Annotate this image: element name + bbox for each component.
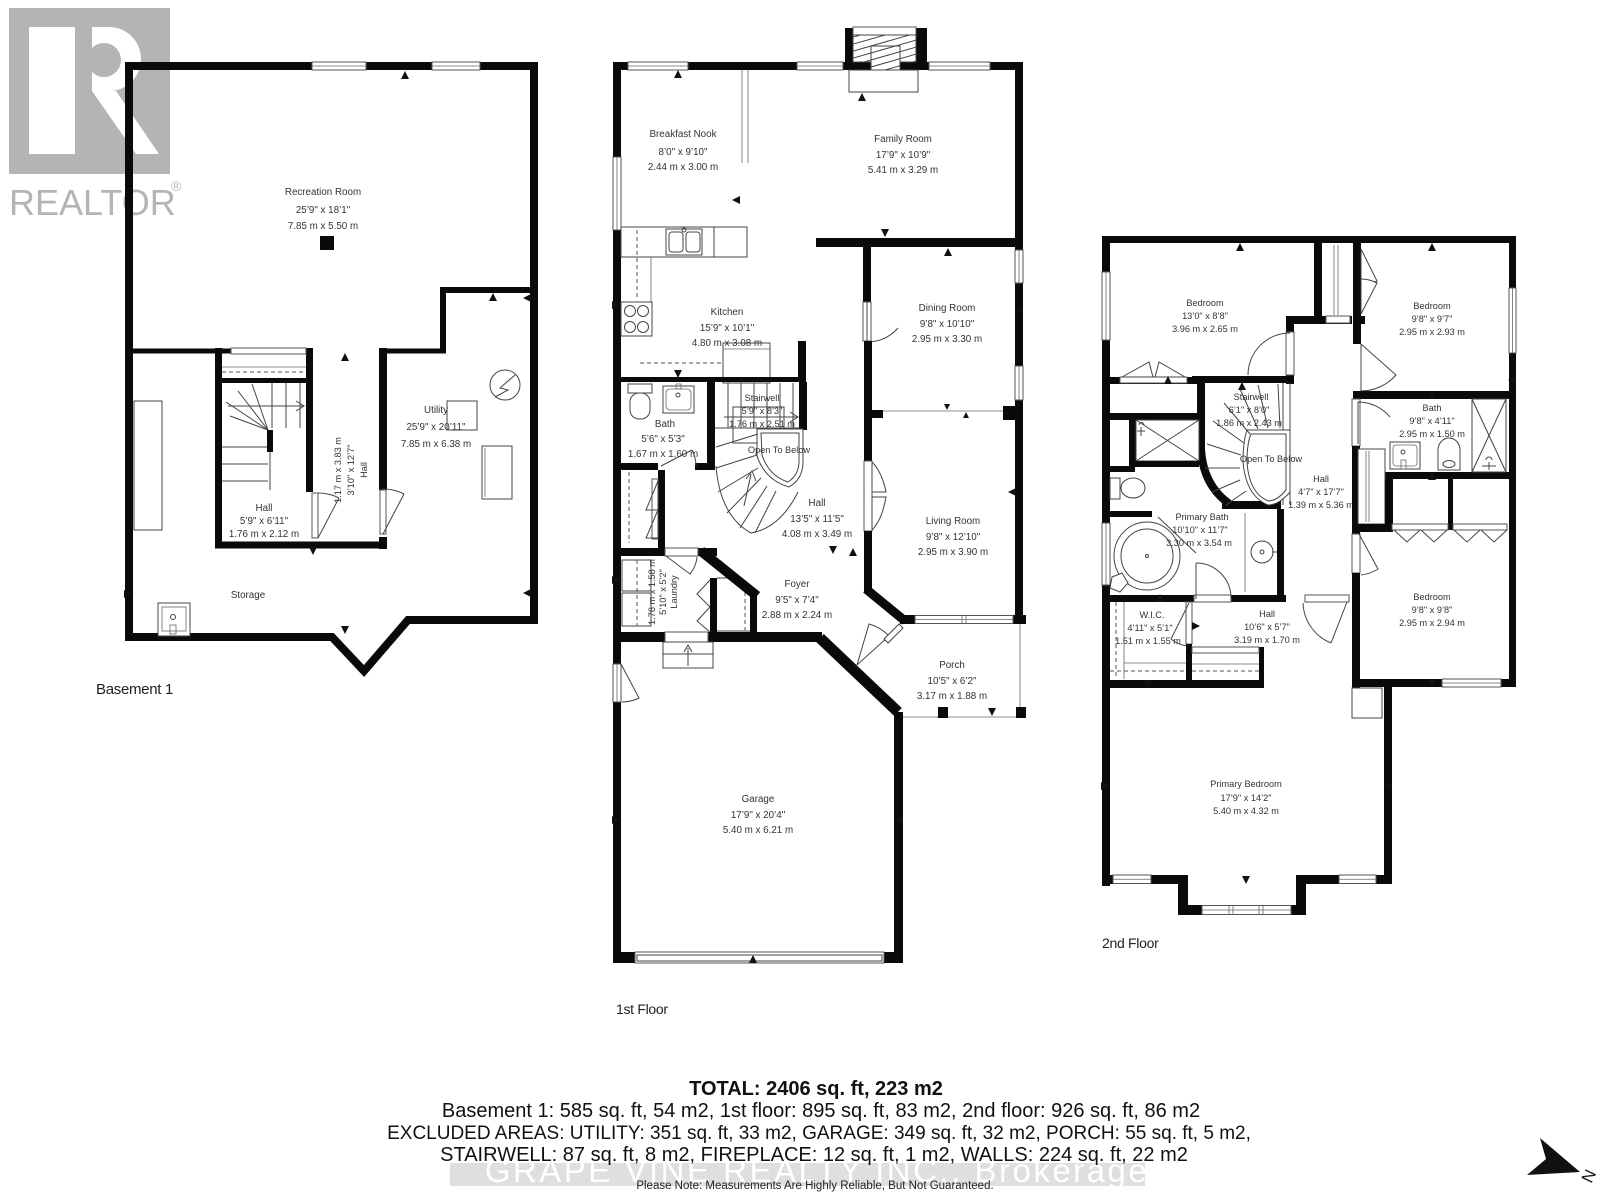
svg-text:5’10" x 5’2": 5’10" x 5’2" (658, 569, 668, 615)
svg-text:Utility: Utility (424, 405, 448, 416)
svg-text:TOTAL: 2406 sq. ft, 223 m2: TOTAL: 2406 sq. ft, 223 m2 (689, 1078, 943, 1100)
svg-text:5.41 m x 3.29 m: 5.41 m x 3.29 m (868, 165, 938, 176)
svg-text:Dining Room: Dining Room (919, 303, 976, 314)
svg-text:4.08 m x 3.49 m: 4.08 m x 3.49 m (782, 529, 852, 540)
svg-text:Hall: Hall (256, 503, 273, 514)
svg-text:1.51 m x 1.55 m: 1.51 m x 1.55 m (1115, 636, 1181, 646)
svg-text:5.40 m x 4.32 m: 5.40 m x 4.32 m (1213, 806, 1279, 816)
svg-text:Primary Bedroom: Primary Bedroom (1210, 779, 1282, 789)
svg-text:STAIRWELL: 87 sq. ft, 8 m2, FI: STAIRWELL: 87 sq. ft, 8 m2, FIREPLACE: 1… (440, 1144, 1188, 1166)
svg-text:5’9" x 8’3": 5’9" x 8’3" (742, 406, 783, 416)
svg-text:15’9" x 10’1": 15’9" x 10’1" (700, 323, 755, 334)
svg-text:Hall: Hall (1313, 474, 1329, 484)
svg-text:Bath: Bath (655, 419, 675, 430)
svg-text:1.67 m x 1.60 m: 1.67 m x 1.60 m (628, 449, 698, 460)
svg-text:Recreation Room: Recreation Room (285, 187, 361, 198)
svg-text:1.78 m x 1.58 m: 1.78 m x 1.58 m (647, 559, 657, 625)
svg-text:2.95 m x 2.94 m: 2.95 m x 2.94 m (1399, 618, 1465, 628)
svg-text:6’1" x 8’0": 6’1" x 8’0" (1229, 405, 1270, 415)
svg-text:17’9" x 20’4": 17’9" x 20’4" (731, 810, 786, 821)
svg-text:Stairwell: Stairwell (1234, 392, 1269, 402)
svg-text:13’5" x 11’5": 13’5" x 11’5" (790, 514, 844, 525)
svg-text:2.95 m x 3.90 m: 2.95 m x 3.90 m (918, 547, 988, 558)
svg-text:17’9" x 14’2": 17’9" x 14’2" (1221, 793, 1272, 803)
svg-text:Please Note: Measurements Are: Please Note: Measurements Are Highly Rel… (636, 1180, 993, 1192)
svg-text:Basement 1: 585 sq. ft, 54 m2,: Basement 1: 585 sq. ft, 54 m2, 1st floor… (442, 1100, 1200, 1122)
svg-text:W.I.C.: W.I.C. (1139, 610, 1164, 620)
svg-text:2.95 m x 3.30 m: 2.95 m x 3.30 m (912, 334, 982, 345)
svg-text:1.39 m x 5.36 m: 1.39 m x 5.36 m (1288, 500, 1354, 510)
svg-text:Family Room: Family Room (874, 134, 932, 145)
svg-text:®: ® (171, 178, 182, 194)
svg-text:8’0" x 9’10": 8’0" x 9’10" (659, 147, 708, 158)
svg-text:9’8" x 4’11": 9’8" x 4’11" (1409, 416, 1454, 426)
svg-text:Breakfast Nook: Breakfast Nook (650, 129, 717, 140)
svg-text:9’8" x 12’10": 9’8" x 12’10" (926, 532, 981, 543)
svg-text:REALTOR: REALTOR (9, 182, 176, 223)
svg-text:25’9" x 20’11": 25’9" x 20’11" (406, 422, 466, 433)
svg-text:Garage: Garage (742, 794, 775, 805)
svg-text:3.30 m x 3.54 m: 3.30 m x 3.54 m (1166, 538, 1232, 548)
svg-text:3’10" x 12’7": 3’10" x 12’7" (346, 445, 356, 496)
svg-text:2.95 m x 1.50 m: 2.95 m x 1.50 m (1399, 429, 1465, 439)
svg-text:Open To Below: Open To Below (1240, 454, 1303, 464)
svg-text:9’8" x 9’7": 9’8" x 9’7" (1412, 314, 1453, 324)
svg-text:Open To Below: Open To Below (748, 445, 811, 455)
svg-text:5.40 m x 6.21 m: 5.40 m x 6.21 m (723, 825, 793, 836)
svg-text:1.76 m x 2.51 m: 1.76 m x 2.51 m (729, 419, 795, 429)
svg-text:Porch: Porch (939, 660, 965, 671)
svg-text:Hall: Hall (359, 462, 369, 478)
svg-text:25’9" x 18’1": 25’9" x 18’1" (296, 205, 351, 216)
svg-text:2.88 m x 2.24 m: 2.88 m x 2.24 m (762, 610, 832, 621)
svg-text:Bedroom: Bedroom (1186, 298, 1224, 308)
svg-text:1.86 m x 2.43 m: 1.86 m x 2.43 m (1216, 418, 1282, 428)
svg-text:Storage: Storage (231, 590, 266, 601)
svg-text:EXCLUDED AREAS: UTILITY: 351 s: EXCLUDED AREAS: UTILITY: 351 sq. ft, 33 … (387, 1123, 1251, 1144)
svg-text:Hall: Hall (1259, 609, 1275, 619)
svg-text:13’0" x 8’8": 13’0" x 8’8" (1182, 311, 1228, 321)
svg-text:Hall: Hall (809, 498, 826, 509)
svg-text:4’7" x 17’7": 4’7" x 17’7" (1298, 487, 1344, 497)
svg-text:9’5" x 7’4": 9’5" x 7’4" (775, 595, 819, 606)
svg-text:1.76 m x 2.12 m: 1.76 m x 2.12 m (229, 529, 299, 540)
svg-text:Laundry: Laundry (669, 575, 679, 609)
svg-text:5’6" x 5’3": 5’6" x 5’3" (641, 434, 685, 445)
svg-text:Basement 1: Basement 1 (96, 681, 173, 698)
svg-text:2.95 m x 2.93 m: 2.95 m x 2.93 m (1399, 327, 1465, 337)
svg-text:Living Room: Living Room (926, 516, 980, 527)
svg-text:Bedroom: Bedroom (1413, 301, 1451, 311)
svg-text:1st Floor: 1st Floor (616, 1001, 668, 1017)
svg-text:4.80 m x 3.08 m: 4.80 m x 3.08 m (692, 338, 762, 349)
svg-text:2.44 m x 3.00 m: 2.44 m x 3.00 m (648, 162, 718, 173)
svg-text:4’11" x 5’1": 4’11" x 5’1" (1127, 623, 1172, 633)
svg-text:10’5" x 6’2": 10’5" x 6’2" (928, 676, 977, 687)
svg-text:Bedroom: Bedroom (1413, 592, 1451, 602)
svg-text:2nd Floor: 2nd Floor (1102, 935, 1159, 951)
svg-text:9’8" x 10’10": 9’8" x 10’10" (920, 319, 975, 330)
svg-text:9’8" x 9’8": 9’8" x 9’8" (1412, 605, 1453, 615)
svg-text:17’9" x 10’9": 17’9" x 10’9" (876, 150, 931, 161)
svg-text:10’6" x 5’7": 10’6" x 5’7" (1244, 622, 1290, 632)
svg-text:7.85 m x 5.50 m: 7.85 m x 5.50 m (288, 221, 358, 232)
svg-text:7.85 m x 6.38 m: 7.85 m x 6.38 m (401, 439, 471, 450)
svg-text:Foyer: Foyer (784, 579, 810, 590)
svg-text:1.17 m x 3.83 m: 1.17 m x 3.83 m (333, 437, 343, 503)
svg-text:Primary Bath: Primary Bath (1175, 512, 1228, 522)
svg-text:3.96 m x 2.65 m: 3.96 m x 2.65 m (1172, 324, 1238, 334)
svg-text:10’10" x 11’7": 10’10" x 11’7" (1172, 525, 1227, 535)
svg-text:Stairwell: Stairwell (745, 393, 780, 403)
svg-text:Kitchen: Kitchen (711, 307, 744, 318)
svg-text:3.19 m x 1.70 m: 3.19 m x 1.70 m (1234, 635, 1300, 645)
svg-text:Bath: Bath (1423, 403, 1442, 413)
svg-text:5’9" x 6’11": 5’9" x 6’11" (240, 516, 289, 527)
svg-text:3.17 m x 1.88 m: 3.17 m x 1.88 m (917, 691, 987, 702)
